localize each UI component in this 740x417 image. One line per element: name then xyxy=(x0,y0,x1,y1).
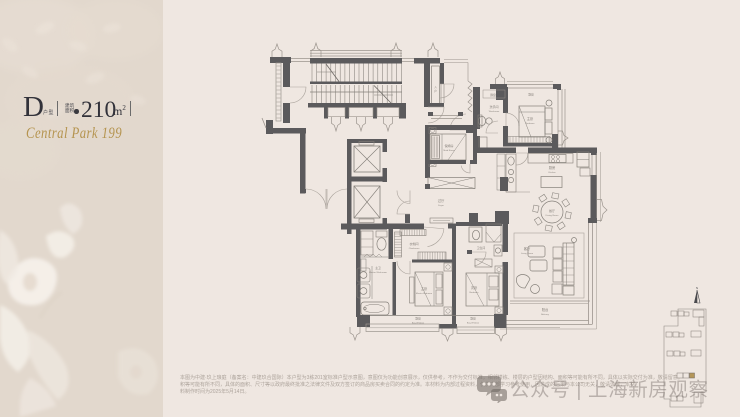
svg-text:厨房: 厨房 xyxy=(549,165,556,170)
svg-text:Kitchen: Kitchen xyxy=(548,171,556,174)
svg-text:衣帽间: 衣帽间 xyxy=(409,241,418,246)
svg-text:Bedroom: Bedroom xyxy=(470,291,479,294)
svg-text:Balcony: Balcony xyxy=(541,314,550,316)
svg-text:飘窗: 飘窗 xyxy=(415,317,421,321)
svg-text:主卫: 主卫 xyxy=(375,266,381,270)
svg-text:Foyer: Foyer xyxy=(438,204,444,207)
svg-text:Master Washroom: Master Washroom xyxy=(369,271,387,274)
svg-text:飘窗: 飘窗 xyxy=(470,317,476,321)
svg-text:保姆房: 保姆房 xyxy=(444,143,453,148)
svg-text:Master Bedroom: Master Bedroom xyxy=(416,292,432,295)
svg-text:Washroom: Washroom xyxy=(489,110,500,113)
svg-text:Bay Window: Bay Window xyxy=(467,323,480,325)
svg-text:次卧: 次卧 xyxy=(471,285,478,290)
svg-text:主卧: 主卧 xyxy=(527,116,534,121)
svg-text:Cloakroom: Cloakroom xyxy=(409,247,420,250)
svg-text:户: 户 xyxy=(434,89,437,93)
svg-text:飘窗: 飘窗 xyxy=(490,92,496,97)
svg-text:客厅: 客厅 xyxy=(524,246,531,251)
svg-text:卫生间: 卫生间 xyxy=(477,246,486,250)
svg-text:入: 入 xyxy=(434,85,437,89)
svg-text:阳台: 阳台 xyxy=(542,307,549,312)
svg-text:洗手间: 洗手间 xyxy=(489,104,498,109)
svg-text:Bay Window: Bay Window xyxy=(412,323,425,325)
svg-text:过厅: 过厅 xyxy=(438,198,445,203)
svg-text:N: N xyxy=(696,286,698,290)
svg-text:Dining Room: Dining Room xyxy=(546,215,559,217)
svg-text:Maid Room: Maid Room xyxy=(443,150,454,152)
svg-text:Living Room: Living Room xyxy=(521,253,533,255)
svg-text:飘窗: 飘窗 xyxy=(528,93,534,97)
svg-text:主卧: 主卧 xyxy=(421,286,428,291)
svg-text:餐厅: 餐厅 xyxy=(549,208,555,213)
svg-text:Bedroom: Bedroom xyxy=(526,122,535,125)
